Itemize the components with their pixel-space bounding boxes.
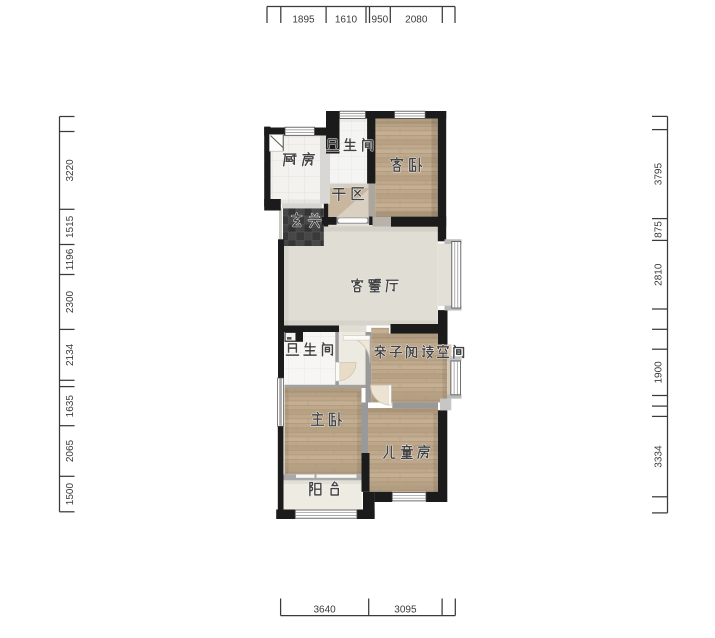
svg-text:875: 875 bbox=[654, 221, 665, 238]
svg-text:3220: 3220 bbox=[65, 159, 76, 182]
svg-text:3640: 3640 bbox=[313, 605, 336, 616]
svg-text:1515: 1515 bbox=[65, 215, 76, 238]
svg-text:2065: 2065 bbox=[65, 439, 76, 462]
svg-text:3795: 3795 bbox=[654, 163, 665, 186]
svg-text:950: 950 bbox=[372, 15, 389, 26]
svg-text:1500: 1500 bbox=[65, 483, 76, 506]
svg-text:3334: 3334 bbox=[654, 445, 665, 468]
svg-text:3095: 3095 bbox=[394, 605, 417, 616]
svg-text:1610: 1610 bbox=[335, 15, 358, 26]
svg-text:2300: 2300 bbox=[65, 290, 76, 313]
svg-text:1196: 1196 bbox=[65, 248, 76, 270]
svg-text:1895: 1895 bbox=[292, 15, 315, 26]
svg-text:2134: 2134 bbox=[65, 343, 76, 366]
svg-text:2080: 2080 bbox=[405, 15, 428, 26]
svg-text:1900: 1900 bbox=[654, 361, 665, 384]
svg-text:2810: 2810 bbox=[654, 263, 665, 286]
svg-text:1635: 1635 bbox=[65, 395, 76, 418]
